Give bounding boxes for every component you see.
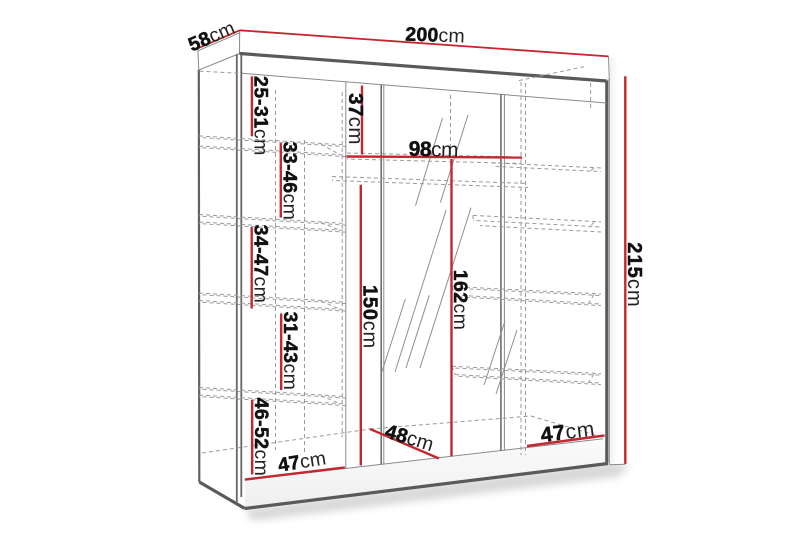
svg-text:200cm: 200cm (405, 23, 465, 47)
svg-text:98cm: 98cm (408, 138, 458, 162)
svg-text:37cm: 37cm (344, 93, 367, 145)
svg-text:162cm: 162cm (449, 270, 471, 331)
svg-text:46-52cm: 46-52cm (250, 398, 272, 477)
svg-text:33-46cm: 33-46cm (278, 142, 300, 221)
svg-text:215cm: 215cm (623, 242, 645, 308)
svg-text:150cm: 150cm (358, 285, 380, 349)
svg-text:25-31cm: 25-31cm (250, 76, 272, 156)
svg-text:34-47cm: 34-47cm (249, 225, 271, 304)
svg-text:31-43cm: 31-43cm (279, 312, 301, 391)
